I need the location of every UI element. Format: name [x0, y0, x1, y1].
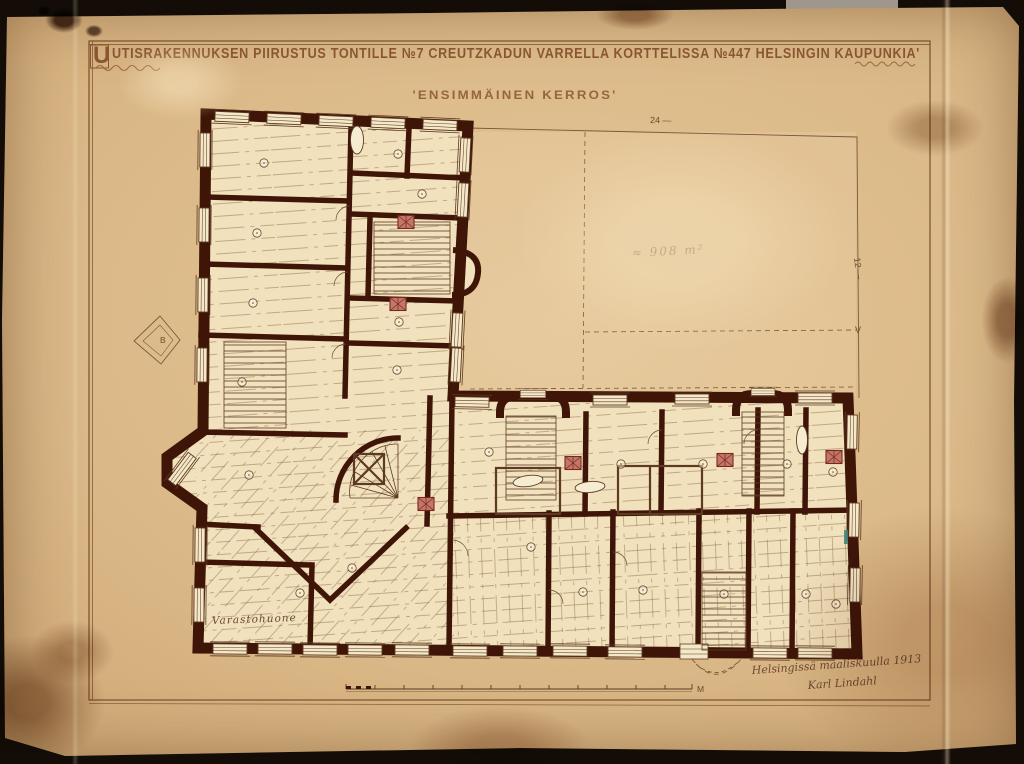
marker-b: B — [160, 335, 166, 345]
sheet-title: UTISRAKENNUKSEN PIIRUSTUS TONTILLE №7 CR… — [112, 46, 920, 62]
dimension-top: 24 — — [650, 115, 672, 125]
sheet-subtitle: 'ENSIMMÄINEN KERROS' — [413, 87, 618, 102]
marker-v: V — [855, 325, 861, 335]
paper-sheet: U UTISRAKENNUKSEN PIIRUSTUS TONTILLE №7 … — [0, 0, 1024, 764]
scale-bar: M — [346, 684, 704, 694]
title-band: U UTISRAKENNUKSEN PIIRUSTUS TONTILLE №7 … — [91, 42, 921, 102]
staircase-bay-2 — [742, 412, 784, 496]
courtyard: ≈ 908 m² 24 — 12 — V — [456, 115, 865, 398]
staircase-upper-left — [224, 342, 286, 428]
title-ornament-right — [855, 62, 915, 66]
scale-label: M — [697, 684, 704, 694]
title-initial: U — [93, 42, 110, 69]
staircase-bottom-right — [702, 572, 746, 650]
floor-plan-drawing: U UTISRAKENNUKSEN PIIRUSTUS TONTILLE №7 … — [0, 0, 1024, 764]
staircase-main-upper — [374, 222, 450, 294]
entrance-porch — [692, 658, 742, 674]
signature-name: Karl Lindahl — [806, 674, 877, 692]
staircase-bay-1 — [506, 416, 556, 500]
photographed-drawing: U UTISRAKENNUKSEN PIIRUSTUS TONTILLE №7 … — [0, 0, 1024, 764]
bathtub — [351, 126, 364, 154]
water-fixture — [844, 530, 848, 544]
